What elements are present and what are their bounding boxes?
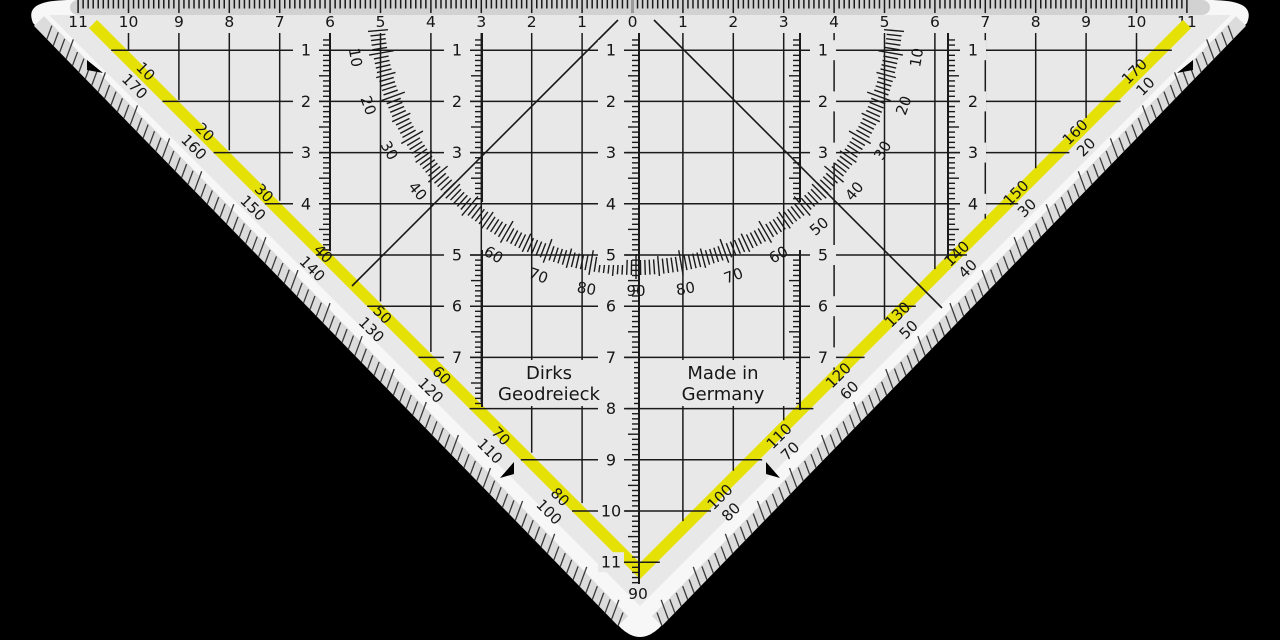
- ruler-number: 2: [728, 13, 738, 31]
- arc-degree-label: 80: [675, 278, 697, 299]
- ruler-number: 9: [174, 13, 184, 31]
- row-number: 1: [301, 41, 311, 60]
- row-number: 3: [301, 143, 311, 162]
- row-number: 11: [601, 553, 621, 572]
- ruler-number: 3: [476, 13, 486, 31]
- ruler-number: 1: [577, 13, 587, 31]
- row-number: 1: [968, 41, 978, 60]
- row-number: 4: [301, 194, 311, 213]
- ruler-number: 7: [275, 13, 285, 31]
- ruler-number: 10: [119, 13, 139, 31]
- row-number: 3: [452, 143, 462, 162]
- brand-line-2: Geodreieck: [498, 384, 601, 405]
- row-number: 6: [818, 297, 828, 316]
- row-number: 7: [452, 348, 462, 367]
- row-number: 6: [606, 297, 616, 316]
- row-number: 7: [818, 348, 828, 367]
- row-number: 3: [606, 143, 616, 162]
- ruler-number: 1: [678, 13, 688, 31]
- row-number: 2: [452, 92, 462, 111]
- row-number: 1: [452, 41, 462, 60]
- row-number: 4: [606, 194, 616, 213]
- geodreieck-canvas: 1110987654321012345678910111234123567123…: [0, 0, 1280, 640]
- ruler-number: 8: [1031, 13, 1041, 31]
- ruler-number: 5: [376, 13, 386, 31]
- ruler-number: 10: [1127, 13, 1147, 31]
- ruler-number: 8: [224, 13, 234, 31]
- origin-line-1: Made in: [687, 363, 758, 384]
- protractor-arc-tick: [645, 260, 646, 275]
- ruler-number: 7: [980, 13, 990, 31]
- protractor-arc-tick: [649, 260, 650, 275]
- row-number: 2: [301, 92, 311, 111]
- ruler-number: 6: [930, 13, 940, 31]
- brand-line-1: Dirks: [526, 363, 572, 384]
- ruler-number: 11: [68, 13, 88, 31]
- row-number: 2: [818, 92, 828, 111]
- ruler-number: 4: [829, 13, 839, 31]
- arc-degree-label: 90: [626, 282, 645, 300]
- geodreieck-illustration: 1110987654321012345678910111234123567123…: [0, 0, 1280, 640]
- row-number: 9: [606, 450, 616, 469]
- row-number: 7: [606, 348, 616, 367]
- row-number: 3: [818, 143, 828, 162]
- ruler-number: 3: [779, 13, 789, 31]
- arc-degree-label: 10: [906, 47, 927, 69]
- arc-degree-label: 80: [576, 278, 598, 299]
- arc-degree-label: 10: [345, 47, 366, 69]
- row-number: 4: [968, 194, 978, 213]
- row-number: 1: [818, 41, 828, 60]
- row-number: 5: [606, 246, 616, 265]
- ruler-number: 6: [325, 13, 335, 31]
- row-number: 6: [452, 297, 462, 316]
- ruler-number: 5: [880, 13, 890, 31]
- row-number: 8: [606, 399, 616, 418]
- ruler-number: 0: [628, 13, 638, 31]
- row-number: 3: [968, 143, 978, 162]
- origin-line-2: Germany: [682, 384, 765, 405]
- ruler-number: 9: [1081, 13, 1091, 31]
- row-number: 2: [606, 92, 616, 111]
- protractor-arc-tick: [627, 260, 628, 275]
- row-number: 10: [601, 502, 621, 521]
- ruler-number: 4: [426, 13, 436, 31]
- ruler-number: 2: [527, 13, 537, 31]
- row-number: 5: [452, 246, 462, 265]
- row-number: 5: [818, 246, 828, 265]
- row-number: 2: [968, 92, 978, 111]
- row-number: 1: [606, 41, 616, 60]
- apex-degree-label: 90: [628, 585, 648, 603]
